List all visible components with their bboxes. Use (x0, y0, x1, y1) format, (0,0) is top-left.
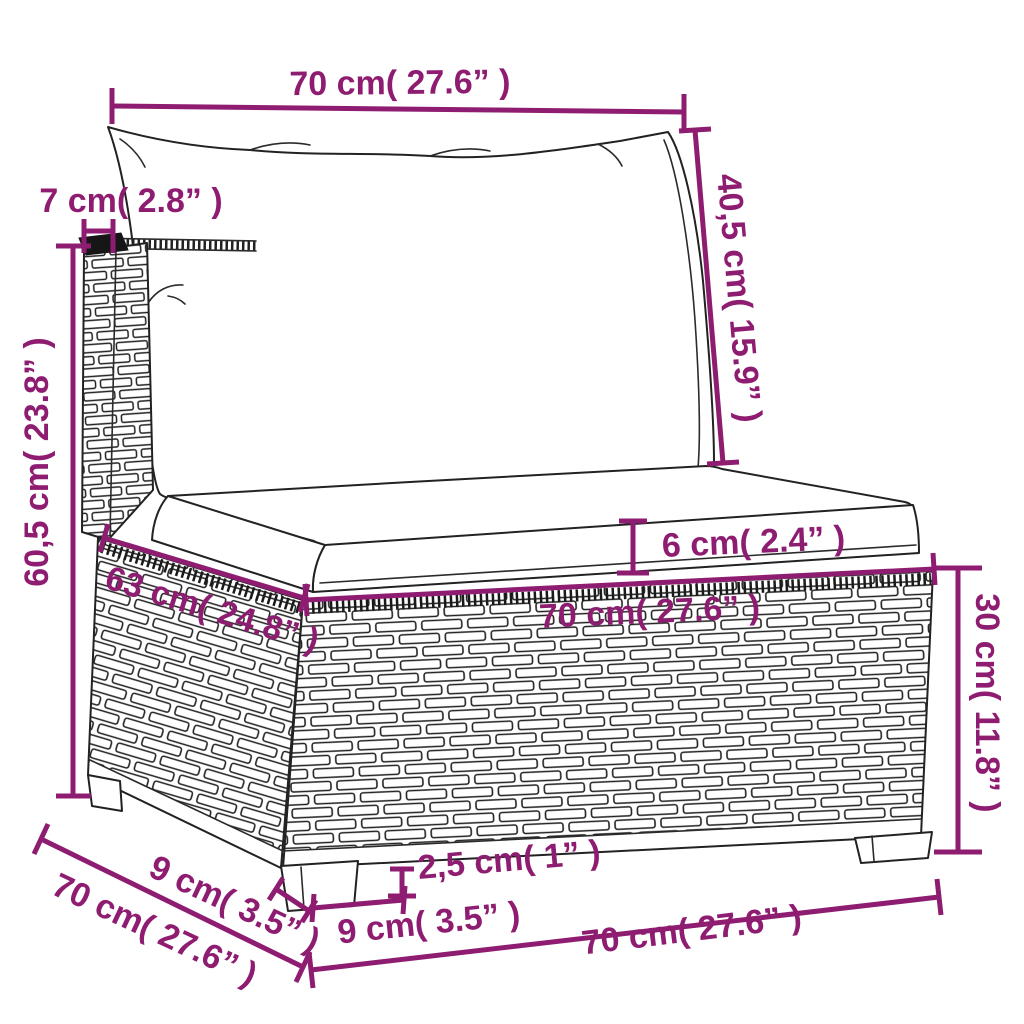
dim-front-width-label: 70 cm( 27.6” ) (580, 898, 804, 963)
dim-top-width: 70 cm( 27.6” ) (112, 63, 684, 130)
dim-base-height: 30 cm( 11.8” ) (934, 568, 1006, 852)
dim-backrest-thickness-label: 7 cm( 2.8” ) (39, 182, 222, 220)
backrest-post (79, 233, 153, 540)
dim-base-height-label: 30 cm( 11.8” ) (968, 593, 1006, 812)
dim-seat-thickness-label: 6 cm( 2.4” ) (661, 519, 846, 565)
dim-top-width-label: 70 cm( 27.6” ) (289, 63, 511, 103)
front-right-leg (855, 832, 932, 863)
back-left-leg (88, 775, 122, 811)
dim-overall-height: 60,5 cm( 23.8” ) (18, 246, 91, 796)
dim-overall-height-label: 60,5 cm( 23.8” ) (18, 337, 56, 586)
sofa-dimension-drawing: 70 cm( 27.6” ) 7 cm( 2.8” ) 60,5 cm( 23.… (0, 0, 1024, 1024)
dimension-diagram: 70 cm( 27.6” ) 7 cm( 2.8” ) 60,5 cm( 23.… (0, 0, 1024, 1024)
